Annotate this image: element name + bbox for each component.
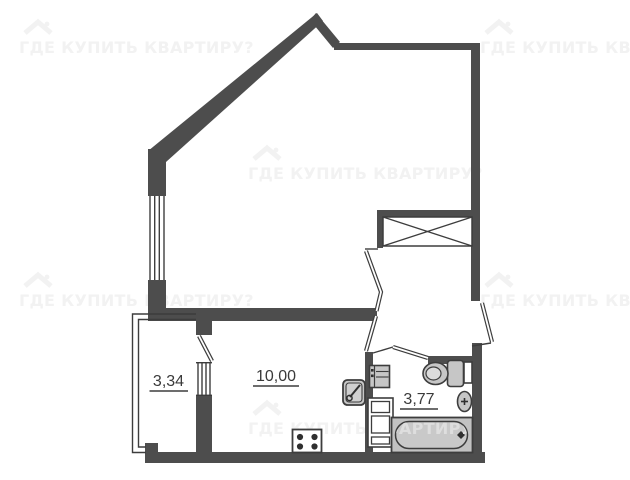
- wall-bottom: [145, 452, 485, 463]
- watermark-text: ГДЕ КУПИТЬ КВАРТИРУ?: [480, 291, 630, 310]
- stove-4-burners: [293, 430, 322, 453]
- wall-niche: [464, 362, 472, 383]
- wall-right-lower: [472, 343, 482, 452]
- bathroom-area-label: 3,77: [403, 391, 434, 408]
- balcony-area-label: 3,34: [153, 373, 184, 390]
- watermark-text: ГДЕ КУПИТЬ КВАРТИРУ?: [480, 38, 630, 57]
- wall-left-upper: [148, 149, 166, 196]
- watermark-text: ГДЕ КУПИТЬ КВАРТИРУ?: [248, 164, 483, 183]
- wall-balcony-door-stub: [196, 321, 212, 335]
- window-balcony-block: [196, 362, 212, 396]
- wall-shaft-top: [377, 210, 475, 217]
- floor-plan-svg: ГДЕ КУПИТЬ КВАРТИРУ? ГДЕ КУПИТЬ КВАРТИРУ…: [0, 0, 630, 480]
- ventilation-shaft: [383, 217, 472, 246]
- floor-plan-canvas: ГДЕ КУПИТЬ КВАРТИРУ? ГДЕ КУПИТЬ КВАРТИРУ…: [0, 0, 630, 480]
- water-heater-cabinet: [368, 398, 393, 447]
- window-living-room: [148, 196, 166, 280]
- wall-balcony-lower: [196, 396, 212, 452]
- wall-bottom-left-step: [145, 443, 158, 452]
- wash-basin: [458, 392, 472, 412]
- watermark-text: ГДЕ КУПИТЬ КВАРТИРУ?: [19, 38, 254, 57]
- wall-shaft-left-stub: [377, 210, 383, 248]
- kitchen-sink: [343, 380, 365, 405]
- wall-right-upper: [471, 43, 480, 301]
- kitchen-area-label: 10,00: [256, 368, 296, 385]
- washing-machine: [370, 366, 390, 388]
- background: [0, 0, 630, 480]
- watermark-text: ГДЕ КУПИТЬ КВАРТИРУ?: [19, 291, 254, 310]
- wall-top: [334, 43, 480, 50]
- toilet: [423, 361, 464, 387]
